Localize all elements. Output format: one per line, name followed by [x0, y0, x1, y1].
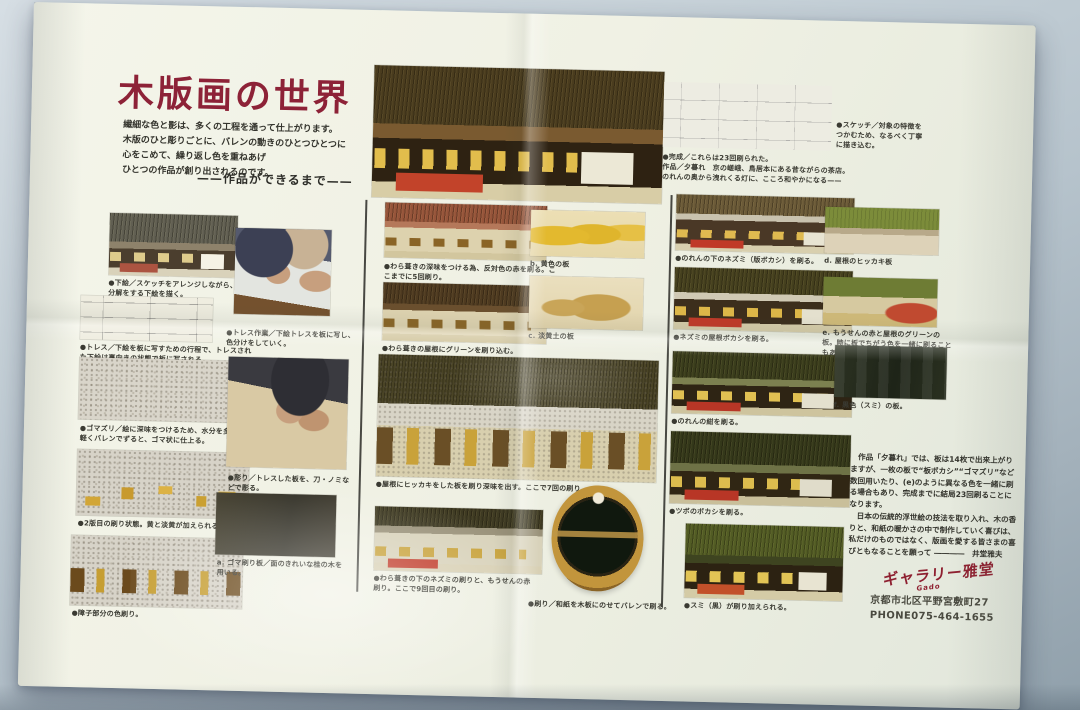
photo-carving: [226, 357, 349, 470]
gallery-address: 京都市北区平野宮敷町27 PHONE075-464-1655: [870, 594, 1041, 627]
figure-green-thatch-print: [382, 282, 547, 344]
figure-hikkaki-roof-print: [376, 354, 659, 483]
caption-noren-navy: ●のれんの紺を刷る。: [671, 417, 851, 431]
figure-trace-drawing: [80, 295, 213, 342]
caption-completion: ●完成／これらは23回刷られた。 作品／夕暮れ 京の嵯峨、鳥居本にある昔ながらの…: [662, 153, 925, 189]
figure-roof-hikkaki-board: [824, 207, 939, 256]
table-edge-shadow: [0, 684, 1080, 710]
caption-tsubo-bokashi: ●ツボのボカシを刷る。: [669, 507, 849, 521]
gallery-stamp-logo: ギャラリー雅堂 Gado: [882, 562, 994, 596]
photo-tracing-work: [234, 228, 332, 316]
figure-tsubo-bokashi-print: [669, 431, 851, 507]
figure-goma-board: [215, 492, 336, 557]
caption-shoji: ●障子部分の色刷り。: [71, 609, 221, 622]
caption-baren: ●刷り／和紙を木板にのせてバレンで刷る。: [528, 600, 703, 614]
caption-gray-under-thatch: ●わら葺きの下のネズミの刷りと、もうせんの赤刷り。ここで9回目の刷り。: [373, 574, 535, 598]
closing-paragraph: 作品「夕暮れ」では、板は14枚で出来上がりますが、一枚の板で“板ボカシ”“ゴマズ…: [848, 451, 1018, 561]
column-divider-1: [356, 200, 367, 592]
figure-noren-navy-print: [671, 351, 852, 417]
figure-finished-print-hero: [371, 65, 664, 204]
photo-baren: [550, 484, 644, 592]
figure-black-board: [834, 345, 947, 400]
figure-sumi-final-print: [684, 524, 844, 602]
figure-gray-under-thatch-print: [374, 506, 543, 574]
figure-ochre-board: [528, 276, 643, 331]
figure-yellow-board: [530, 210, 645, 259]
caption-sumi-final: ●スミ（黒）が刷り加えられる。: [684, 601, 864, 615]
figure-pencil-sketch: [663, 82, 832, 151]
figure-gomazuri-texture: [78, 357, 249, 423]
figure-draft-print: [109, 213, 238, 278]
column-divider-2: [661, 195, 672, 607]
figure-red-thatch-print: [384, 202, 547, 261]
figure-red-green-board: [823, 277, 938, 328]
caption-tracing-work: ●トレス作業／下絵トレスを板に写し、色分けをしていく。: [226, 329, 360, 352]
caption-goma-board: a. ゴマ刷り板／面のきれいな桂の木を用いる。: [216, 558, 348, 581]
brochure-paper: 木版画の世界 繊細な色と影は、多くの工程を通って仕上がります。 木版のひと彫りご…: [18, 2, 1036, 709]
caption-sketch: ●スケッチ／対象の特徴を つかむため、なるべく丁寧 に描き込む。: [836, 121, 945, 153]
